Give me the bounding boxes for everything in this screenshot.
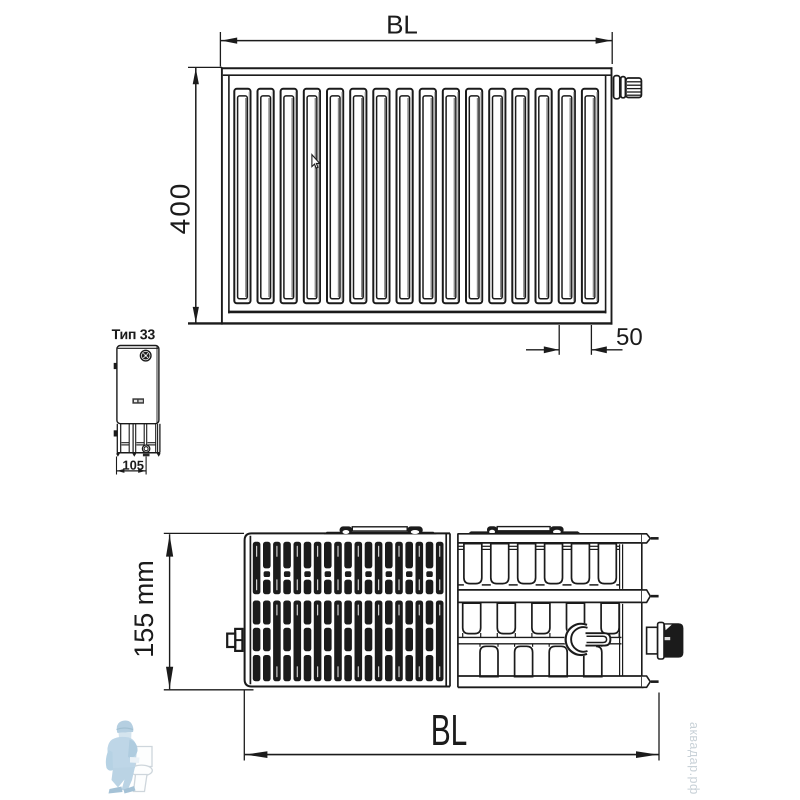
- svg-text:Тип 33: Тип 33: [112, 327, 156, 343]
- svg-text:400: 400: [164, 182, 195, 235]
- svg-text:BL: BL: [431, 705, 468, 754]
- svg-text:105: 105: [122, 458, 144, 473]
- svg-text:BL: BL: [386, 9, 418, 39]
- svg-text:155 mm: 155 mm: [129, 560, 159, 658]
- svg-text:аквадар.рф: аквадар.рф: [687, 722, 701, 795]
- svg-text:50: 50: [616, 324, 643, 351]
